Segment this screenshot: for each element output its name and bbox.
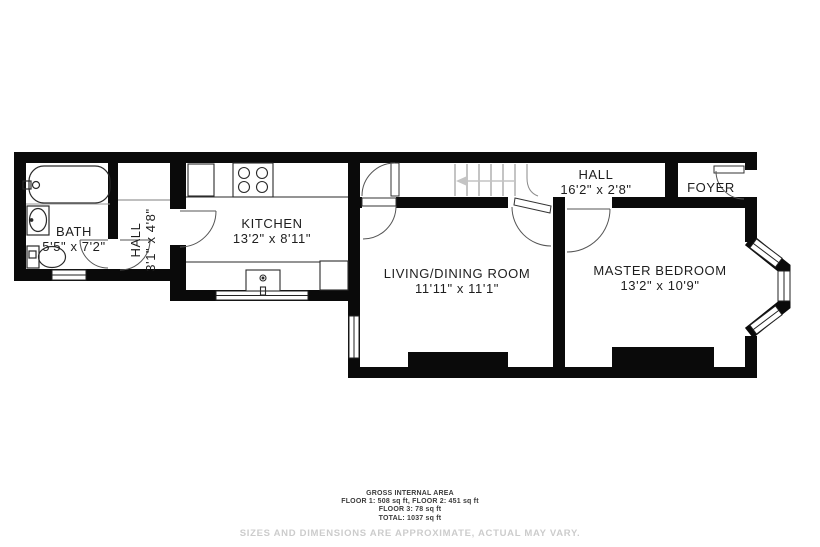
room-dims: 13'2" x 8'11"	[172, 231, 372, 246]
chimney-breast-master	[612, 347, 714, 368]
living-door-right	[512, 198, 551, 246]
bay-window-3	[750, 306, 782, 334]
bath-window	[52, 270, 86, 280]
floor-areas-line1: FLOOR 1: 508 sq ft, FLOOR 2: 451 sq ft	[0, 498, 820, 506]
room-label-living-dining: LIVING/DINING ROOM 11'11" x 11'1"	[357, 266, 557, 296]
room-dims: 13'2" x 10'9"	[560, 278, 760, 293]
floor-areas-line2: FLOOR 3: 78 sq ft	[0, 506, 820, 514]
bay-window-2	[778, 271, 790, 301]
room-dims: 5'5" x 7'2"	[0, 239, 148, 254]
windows	[52, 239, 790, 358]
room-label-kitchen: KITCHEN 13'2" x 8'11"	[172, 216, 372, 246]
room-name: HALL	[579, 167, 614, 182]
stairs-arrow-head	[456, 177, 466, 186]
gross-internal-area-title: GROSS INTERNAL AREA	[0, 490, 820, 498]
room-name: LIVING/DINING ROOM	[384, 266, 531, 281]
room-label-bath: BATH 5'5" x 7'2"	[0, 224, 148, 254]
room-name: FOYER	[687, 180, 735, 195]
living-window	[349, 316, 359, 358]
landing-door	[362, 163, 399, 196]
wall-hall-bottom-b	[396, 197, 508, 208]
bathtub	[29, 166, 110, 203]
room-label-hall-lower: HALL 3'1" x 4'8"	[128, 200, 160, 280]
floor-plan: BATH 5'5" x 7'2" HALL 3'1" x 4'8" KITCHE…	[0, 0, 820, 547]
room-name: KITCHEN	[241, 216, 302, 231]
kitchen-sink-tap-dot	[262, 277, 264, 279]
bath-sink-tap	[30, 219, 33, 222]
total-area: TOTAL: 1037 sq ft	[0, 515, 820, 523]
appliance	[188, 164, 214, 196]
bathtub-drain	[33, 182, 40, 189]
counter-unit	[320, 261, 348, 290]
wall-hall-kitchen-top	[170, 163, 186, 209]
wall-right-mid	[745, 197, 757, 242]
room-label-foyer: FOYER	[661, 180, 761, 195]
room-name: BATH	[56, 224, 92, 239]
wall-hall-bottom-c	[612, 197, 757, 208]
wall-top	[14, 152, 757, 163]
room-name: MASTER BEDROOM	[593, 263, 726, 278]
footer: GROSS INTERNAL AREA FLOOR 1: 508 sq ft, …	[0, 490, 820, 539]
room-dims: 3'1" x 4'8"	[143, 200, 158, 280]
wall-left	[14, 152, 26, 281]
chimney-breast-living	[408, 352, 508, 368]
wall-right-top	[745, 152, 757, 170]
stove	[233, 163, 273, 197]
room-label-master-bedroom: MASTER BEDROOM 13'2" x 10'9"	[560, 263, 760, 293]
room-name: HALL	[128, 223, 143, 258]
disclaimer: SIZES AND DIMENSIONS ARE APPROXIMATE, AC…	[0, 528, 820, 539]
wall-landing-jamb	[348, 163, 360, 197]
wall-bottom-main	[348, 367, 757, 378]
room-dims: 11'11" x 11'1"	[357, 281, 557, 296]
master-bedroom-door	[567, 209, 610, 252]
